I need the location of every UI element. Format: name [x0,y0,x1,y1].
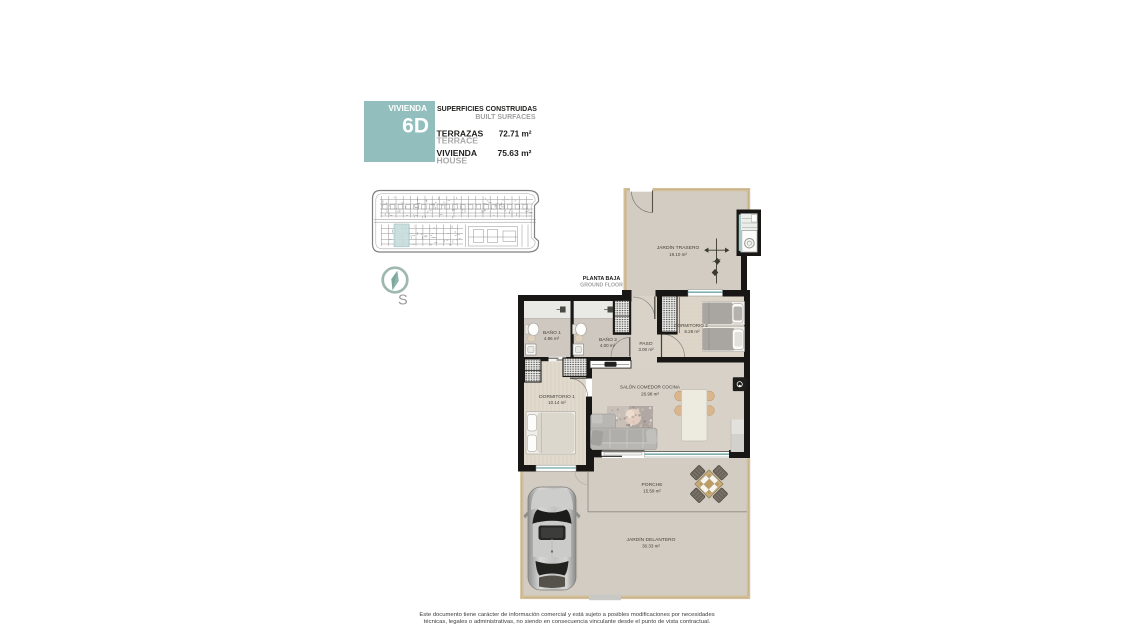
svg-text:10.14 m²: 10.14 m² [548,400,566,405]
svg-text:30.33 m²: 30.33 m² [642,544,660,549]
svg-text:Este documento tiene carácter: Este documento tiene carácter de informa… [419,612,714,618]
svg-text:19.10 m²: 19.10 m² [669,252,687,257]
svg-text:BAÑO 1: BAÑO 1 [543,329,561,336]
svg-text:4.86 m²: 4.86 m² [544,336,560,341]
svg-text:75.63 m²: 75.63 m² [497,148,531,158]
svg-text:4.00 m²: 4.00 m² [600,343,616,348]
svg-text:6D: 6D [402,115,429,138]
svg-text:JARDÍN DELANTERO: JARDÍN DELANTERO [627,536,676,543]
svg-text:PLANTA BAJA: PLANTA BAJA [583,276,621,282]
svg-text:PORCHE: PORCHE [642,482,664,488]
svg-text:S: S [398,293,408,309]
svg-text:JARDÍN TRASERO: JARDÍN TRASERO [657,244,700,251]
svg-text:VIVIENDA: VIVIENDA [388,104,427,113]
svg-text:HOUSE: HOUSE [437,155,468,165]
svg-text:GROUND FLOOR: GROUND FLOOR [580,283,623,289]
svg-text:DORMITORIO 2: DORMITORIO 2 [674,323,708,328]
svg-text:BUILT SURFACES: BUILT SURFACES [475,114,535,121]
svg-text:técnicas, legales o administra: técnicas, legales o administrativas, no … [424,619,711,625]
svg-text:3.00 m²: 3.00 m² [638,347,654,352]
svg-text:26.98 m²: 26.98 m² [641,392,659,397]
svg-text:SUPERFICIES CONSTRUIDAS: SUPERFICIES CONSTRUIDAS [437,106,537,113]
svg-text:8.28 m²: 8.28 m² [684,329,700,334]
svg-text:BAÑO 2: BAÑO 2 [599,336,617,343]
svg-text:72.71 m²: 72.71 m² [499,130,532,139]
svg-text:TERRACE: TERRACE [437,136,479,146]
svg-text:15.59 m²: 15.59 m² [643,489,661,494]
svg-text:SALÓN COMEDOR COCINA: SALÓN COMEDOR COCINA [620,384,681,390]
